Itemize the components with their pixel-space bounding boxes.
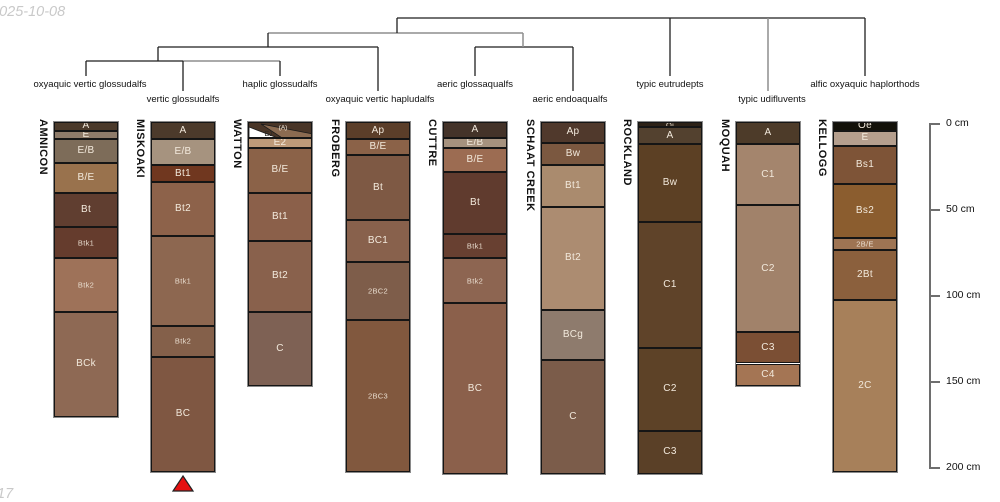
horizon-rockland-c1: C1: [638, 222, 702, 348]
depth-tick: [929, 381, 940, 383]
horizon-miskoaki-a: A: [151, 122, 215, 139]
horizon-label: C1: [737, 170, 799, 180]
horizon-label: BC: [444, 384, 506, 394]
horizon-label: Btk1: [55, 239, 117, 247]
horizon-label: Bt: [55, 205, 117, 215]
horizon-label: Ap: [542, 127, 604, 137]
horizon-label: 2B/E: [834, 240, 896, 248]
taxon-label: typic udifluvents: [738, 94, 806, 105]
horizon-kellogg-bs1: Bs1: [833, 146, 897, 184]
horizon-kellogg-e: E: [833, 131, 897, 147]
horizon-moquah-c4: C4: [736, 364, 800, 386]
horizon-moquah-c3: C3: [736, 332, 800, 363]
horizon-label: E: [834, 133, 896, 143]
horizon-cuttre-a: A: [443, 122, 507, 138]
horizon-miskoaki-bt2: Bt2: [151, 182, 215, 235]
horizon-miskoaki-bt1: Bt1: [151, 165, 215, 182]
horizon-label: C2: [639, 384, 701, 394]
horizon-label: Bt: [347, 183, 409, 193]
horizon-label: C1: [639, 280, 701, 290]
horizon-label: BCk: [55, 359, 117, 369]
horizon-label: 2Bt: [834, 270, 896, 280]
profile-column-rockland: OiABwC1C2C3: [638, 122, 702, 474]
horizon-froberg-bc1: BC1: [346, 220, 410, 261]
horizon-label: C2: [737, 264, 799, 274]
horizon-label: 2C: [834, 381, 896, 391]
horizon-label: B/E: [347, 142, 409, 152]
horizon-label: E/B: [152, 147, 214, 157]
depth-tick-label: 150 cm: [946, 375, 980, 387]
horizon-schaat-creek-bt1: Bt1: [541, 165, 605, 206]
depth-tick-label: 50 cm: [946, 203, 975, 215]
horizon-rockland-c3: C3: [638, 431, 702, 474]
horizon-label: A: [55, 122, 117, 131]
taxon-label: aeric glossaqualfs: [437, 79, 513, 90]
horizon-label: Bt1: [249, 212, 311, 222]
depth-tick: [929, 295, 940, 297]
profile-column-schaat-creek: ApBwBt1Bt2BCgC: [541, 122, 605, 474]
horizon-cuttre-bt: Bt: [443, 172, 507, 234]
horizon-label: B/E: [444, 155, 506, 165]
horizon-froberg-bt: Bt: [346, 155, 410, 221]
horizon-label: Oe: [834, 122, 896, 131]
horizon-label: E2: [249, 138, 311, 148]
horizon-kellogg-oe: Oe: [833, 122, 897, 131]
horizon-amnicon-btk2: Btk2: [54, 258, 118, 311]
horizon-label: E: [55, 131, 117, 140]
depth-tick: [929, 209, 940, 211]
horizon-label: A: [444, 125, 506, 135]
soil-profile-dendrogram-figure: 2025-10-08 oxyaquic vertic glossudalfsve…: [0, 0, 1000, 500]
horizon-rockland-c2: C2: [638, 348, 702, 431]
horizon-label: C4: [737, 370, 799, 380]
horizon-schaat-creek-c: C: [541, 360, 605, 474]
horizon-watton-e2: E2: [248, 138, 312, 148]
series-name-schaat-creek: SCHAAT CREEK: [524, 119, 536, 212]
red-triangle-shape: [173, 476, 193, 491]
horizon-label: E/B: [55, 146, 117, 156]
horizon-label: C: [542, 412, 604, 422]
profile-column-amnicon: AEE/BB/EBtBtk1Btk2BCk: [54, 122, 118, 417]
profile-column-miskoaki: AE/BBt1Bt2Btk1Btk2BC: [151, 122, 215, 472]
horizon-froberg-2bc3: 2BC3: [346, 320, 410, 472]
horizon-label: A: [152, 126, 214, 136]
taxon-label: haplic glossudalfs: [243, 79, 318, 90]
horizon-cuttre-bc: BC: [443, 303, 507, 474]
horizon-label: BCg: [542, 330, 604, 340]
horizon-rockland-bw: Bw: [638, 144, 702, 222]
horizon-miskoaki-eb: E/B: [151, 139, 215, 165]
series-name-froberg: FROBERG: [329, 119, 341, 178]
horizon-label: Bw: [542, 149, 604, 159]
depth-tick-label: 200 cm: [946, 461, 980, 473]
horizon-amnicon-be: B/E: [54, 163, 118, 192]
depth-tick: [929, 467, 940, 469]
wedge-horizon-graphic: (A)E1: [249, 123, 312, 138]
horizon-label: Btk1: [444, 242, 506, 250]
series-name-miskoaki: MISKOAKI: [134, 119, 146, 178]
profile-column-moquah: AC1C2C3C4: [736, 122, 800, 386]
horizon-cuttre-btk1: Btk1: [443, 234, 507, 258]
profile-column-froberg: ApB/EBtBC12BC22BC3: [346, 122, 410, 472]
horizon-label: Btk1: [152, 277, 214, 285]
horizon-label: C3: [737, 343, 799, 353]
horizon-schaat-creek-bcg: BCg: [541, 310, 605, 360]
horizon-amnicon-a: A: [54, 122, 118, 131]
horizon-moquah-a: A: [736, 122, 800, 144]
horizon-watton-a: (A)E1: [248, 122, 312, 138]
horizon-watton-c: C: [248, 312, 312, 386]
horizon-amnicon-bck: BCk: [54, 312, 118, 417]
horizon-schaat-creek-bt2: Bt2: [541, 207, 605, 311]
profile-column-watton: (A)E1E2B/EBt1Bt2C: [248, 122, 312, 386]
horizon-label: BC: [152, 409, 214, 419]
horizon-kellogg-2bt: 2Bt: [833, 250, 897, 300]
horizon-label: 2BC2: [347, 287, 409, 295]
depth-tick-label: 0 cm: [946, 117, 969, 129]
profile-column-kellogg: OeEBs1Bs22B/E2Bt2C: [833, 122, 897, 472]
horizon-label: Bs1: [834, 160, 896, 170]
series-name-watton: WATTON: [231, 119, 243, 169]
horizon-froberg-be: B/E: [346, 139, 410, 155]
horizon-kellogg-2c: 2C: [833, 300, 897, 473]
series-name-amnicon: AMNICON: [37, 119, 49, 175]
depth-tick: [929, 123, 940, 125]
series-name-cuttre: CUTTRE: [426, 119, 438, 167]
horizon-moquah-c1: C1: [736, 144, 800, 204]
horizon-amnicon-bt: Bt: [54, 193, 118, 228]
horizon-kellogg-2be: 2B/E: [833, 238, 897, 250]
taxon-label: vertic glossudalfs: [147, 94, 220, 105]
horizon-label: A: [639, 131, 701, 141]
horizon-miskoaki-bc: BC: [151, 357, 215, 473]
horizon-label: A: [737, 128, 799, 138]
horizon-label: Btk2: [55, 281, 117, 289]
horizon-miskoaki-btk2: Btk2: [151, 326, 215, 357]
horizon-watton-bt2: Bt2: [248, 241, 312, 312]
horizon-kellogg-bs2: Bs2: [833, 184, 897, 237]
horizon-label: Bs2: [834, 206, 896, 216]
horizon-label: Bt: [444, 198, 506, 208]
red-triangle-icon: [171, 475, 195, 493]
horizon-cuttre-btk2: Btk2: [443, 258, 507, 303]
taxon-label: aeric endoaqualfs: [533, 94, 608, 105]
horizon-watton-be: B/E: [248, 148, 312, 193]
taxon-label: oxyaquic vertic hapludalfs: [326, 94, 435, 105]
horizon-label: B/E: [55, 173, 117, 183]
horizon-label: Bt2: [249, 271, 311, 281]
horizon-rockland-a: A: [638, 127, 702, 144]
taxon-label: oxyaquic vertic glossudalfs: [34, 79, 147, 90]
taxon-label: typic eutrudepts: [636, 79, 703, 90]
horizon-label: Btk2: [152, 337, 214, 345]
horizon-label: B/E: [249, 165, 311, 175]
horizon-watton-bt1: Bt1: [248, 193, 312, 241]
horizon-schaat-creek-ap: Ap: [541, 122, 605, 143]
horizon-cuttre-be: B/E: [443, 148, 507, 172]
horizon-label: Bt2: [542, 253, 604, 263]
horizon-froberg-ap: Ap: [346, 122, 410, 139]
horizon-cuttre-eb: E/B: [443, 138, 507, 148]
horizon-label: Ap: [347, 126, 409, 136]
horizon-schaat-creek-bw: Bw: [541, 143, 605, 165]
taxon-label: alfic oxyaquic haplorthods: [810, 79, 919, 90]
horizon-froberg-2bc2: 2BC2: [346, 262, 410, 321]
series-name-moquah: MOQUAH: [719, 119, 731, 172]
horizon-moquah-c2: C2: [736, 205, 800, 333]
horizon-label: Bt2: [152, 204, 214, 214]
horizon-label: Bt1: [152, 169, 214, 179]
horizon-label: BC1: [347, 236, 409, 246]
horizon-label: E1: [264, 129, 273, 138]
horizon-amnicon-e: E: [54, 131, 118, 140]
horizon-label: Bt1: [542, 181, 604, 191]
horizon-amnicon-btk1: Btk1: [54, 227, 118, 258]
horizon-amnicon-eb: E/B: [54, 139, 118, 163]
horizon-label: (A): [279, 124, 288, 131]
depth-tick-label: 100 cm: [946, 289, 980, 301]
horizon-label: 2BC3: [347, 393, 409, 401]
horizon-label: Bw: [639, 178, 701, 188]
horizon-label: Btk2: [444, 277, 506, 285]
series-name-kellogg: KELLOGG: [816, 119, 828, 177]
horizon-label: E/B: [444, 138, 506, 148]
horizon-miskoaki-btk1: Btk1: [151, 236, 215, 326]
horizon-label: C3: [639, 447, 701, 457]
series-name-rockland: ROCKLAND: [621, 119, 633, 186]
profile-column-cuttre: AE/BB/EBtBtk1Btk2BC: [443, 122, 507, 474]
horizon-label: C: [249, 344, 311, 354]
